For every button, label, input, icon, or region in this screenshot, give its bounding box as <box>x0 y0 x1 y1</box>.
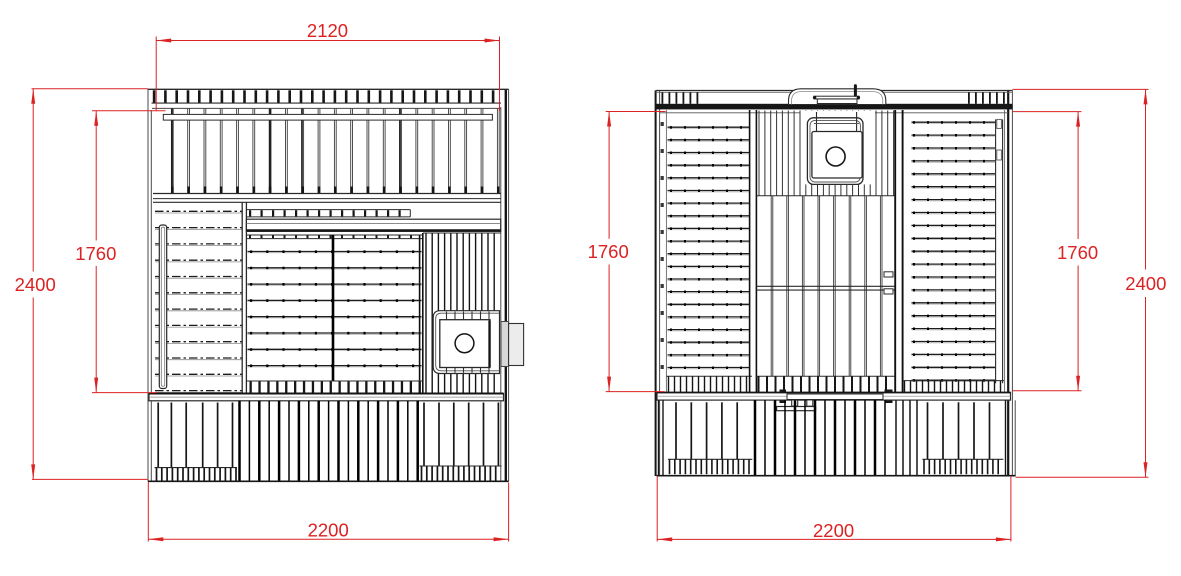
svg-text:1760: 1760 <box>75 243 116 264</box>
svg-text:1760: 1760 <box>1057 242 1098 263</box>
svg-text:2200: 2200 <box>813 520 854 541</box>
svg-text:2120: 2120 <box>307 20 348 41</box>
svg-text:2400: 2400 <box>1125 273 1166 294</box>
svg-text:2400: 2400 <box>15 274 56 295</box>
svg-text:1760: 1760 <box>588 241 629 262</box>
svg-text:2200: 2200 <box>308 520 349 541</box>
